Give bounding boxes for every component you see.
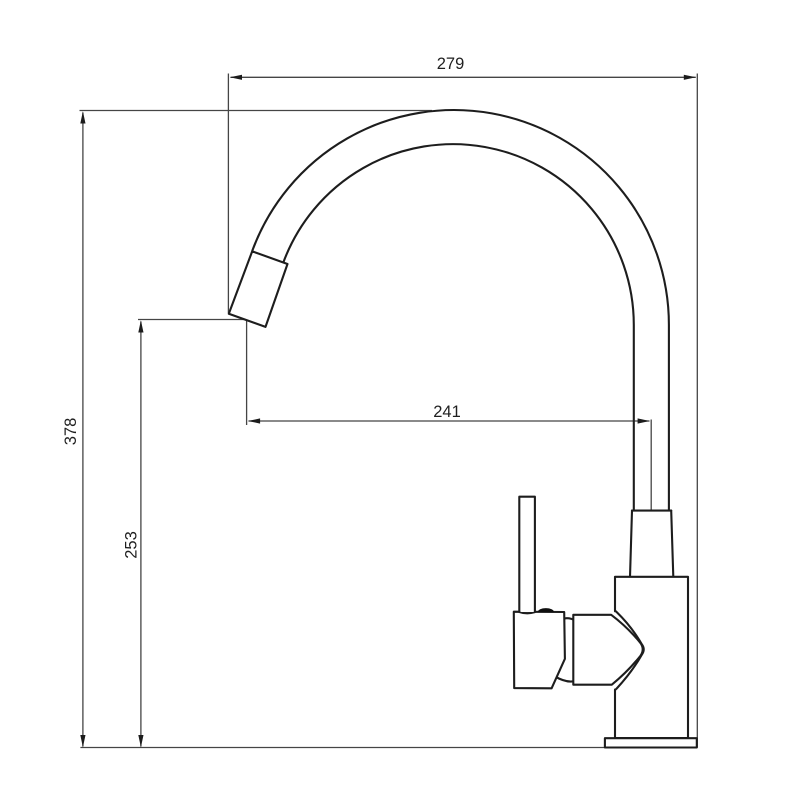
svg-text:279: 279 [437, 55, 465, 73]
svg-text:253: 253 [123, 531, 141, 559]
svg-text:241: 241 [433, 403, 461, 421]
svg-text:378: 378 [62, 418, 80, 446]
